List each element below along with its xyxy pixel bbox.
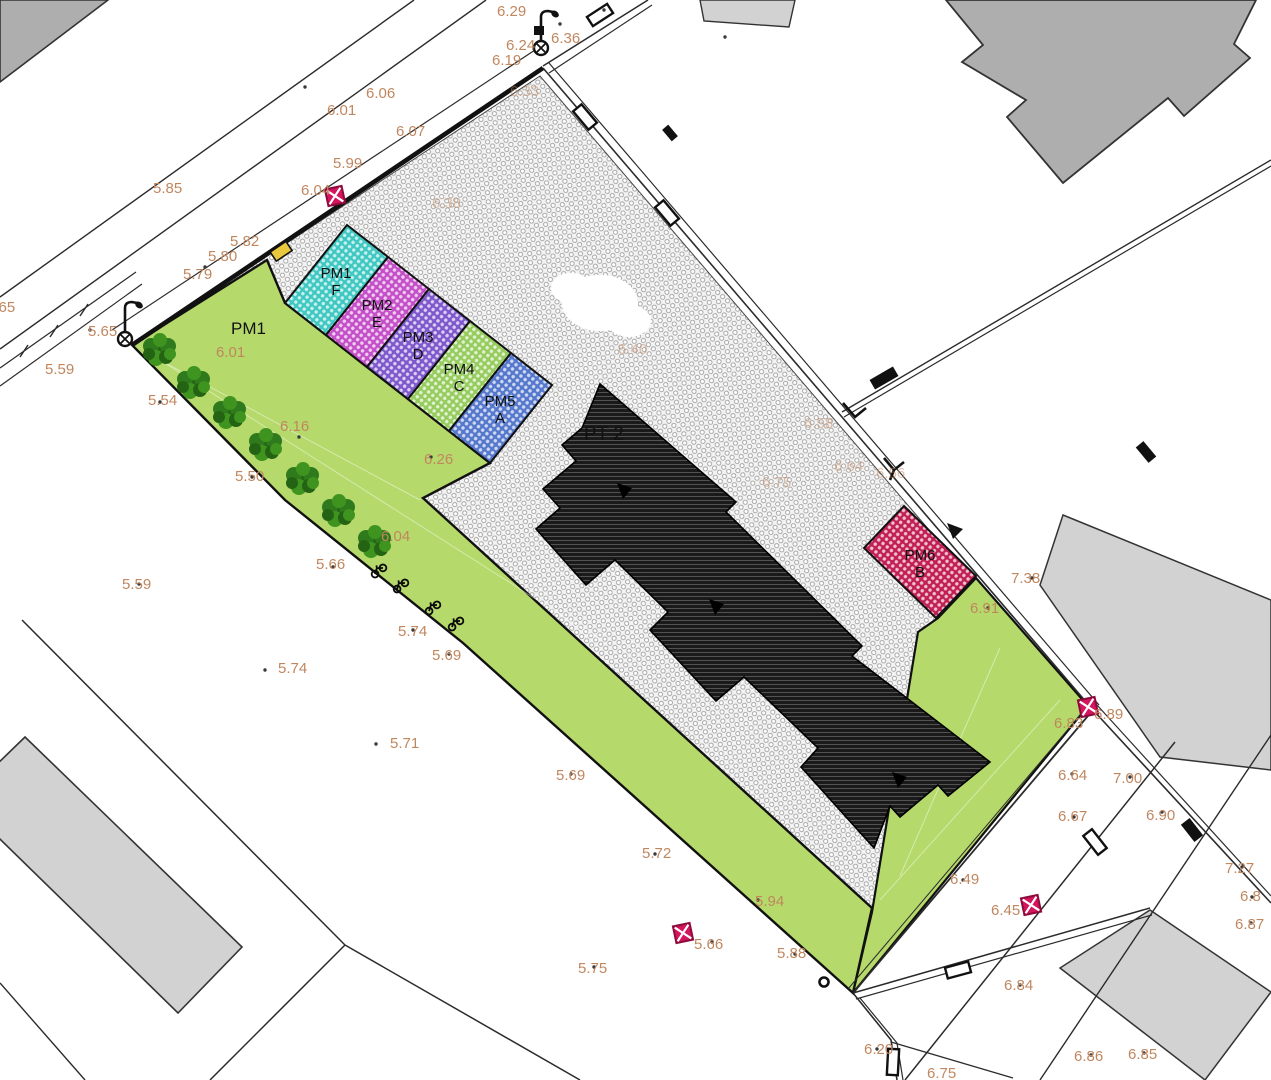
- boundary-marker-icon: [1021, 895, 1041, 915]
- elevation-label: 5.71: [390, 735, 419, 752]
- curb-line-left-1: [0, 272, 136, 368]
- shape: [296, 462, 310, 476]
- survey-dot: [602, 8, 605, 11]
- elevation-label: 6.04: [301, 182, 330, 199]
- elevation-label: 5.66: [694, 936, 723, 953]
- elevation-label: 7.27: [1225, 860, 1254, 877]
- elevation-label: 5.72: [642, 845, 671, 862]
- elevation-label: 6.04: [381, 528, 410, 545]
- elevation-label: 5.50: [235, 468, 264, 485]
- elevation-label: 6.8: [1240, 888, 1261, 905]
- shape: [368, 525, 382, 539]
- parking-space-label: B: [915, 564, 925, 581]
- fence-line-right: [842, 160, 1271, 412]
- elevation-label: 6.83: [1054, 715, 1083, 732]
- utility-point-icon: [820, 978, 829, 987]
- elevation-label: 5.74: [398, 623, 427, 640]
- parking-space-label: A: [495, 410, 505, 427]
- curb-tick: [50, 325, 58, 337]
- curb-tick: [20, 345, 28, 357]
- parcel-line-bottom-left: [210, 945, 345, 1080]
- elevation-label-faint: 6.75: [762, 474, 791, 491]
- parcel-line-bottom-left: [0, 983, 85, 1080]
- elevation-label: 5.65: [0, 299, 15, 316]
- building-label: PT 2: [584, 424, 624, 445]
- parking-space-label: PM1: [321, 265, 352, 282]
- fence-post-icon: [662, 125, 678, 142]
- survey-dot: [263, 668, 266, 671]
- elevation-label: 5.69: [432, 647, 461, 664]
- shape: [307, 477, 319, 489]
- elevation-label-faint: 6.38: [432, 195, 461, 212]
- survey-dot: [558, 22, 561, 25]
- elevation-label: 6.84: [1004, 977, 1033, 994]
- elevation-label: 5.74: [278, 660, 307, 677]
- neighbor-building-bottom-left: [0, 737, 242, 1013]
- elevation-label: 6.01: [327, 102, 356, 119]
- elevation-label: 6.07: [396, 123, 425, 140]
- shape: [259, 428, 273, 442]
- elevation-label: 5.88: [777, 945, 806, 962]
- parking-space-label: F: [331, 282, 340, 299]
- elevation-label: 6.90: [1146, 807, 1175, 824]
- shape: [223, 396, 237, 410]
- elevation-label: 5.69: [556, 767, 585, 784]
- shape: [143, 348, 155, 360]
- shape: [343, 509, 355, 521]
- shape: [286, 477, 298, 489]
- elevation-label: 6.86: [1074, 1048, 1103, 1065]
- parking-space-label: PM5: [485, 393, 516, 410]
- elevation-label-faint: 6.58: [804, 415, 833, 432]
- survey-dot: [374, 742, 377, 745]
- elevation-label: 6.36: [551, 30, 580, 47]
- boundary-marker-icon: [673, 923, 693, 943]
- shape: [270, 443, 282, 455]
- shape: [213, 411, 225, 423]
- parking-space-label: PM6: [905, 547, 936, 564]
- elevation-label: 6.75: [927, 1065, 956, 1080]
- survey-dot: [303, 85, 306, 88]
- elevation-label: 6.49: [950, 871, 979, 888]
- elevation-label: 6.29: [497, 3, 526, 20]
- neighbor-building-top-left: [0, 0, 108, 82]
- shape: [534, 26, 544, 35]
- parking-space-label: D: [413, 346, 424, 363]
- shape: [187, 366, 201, 380]
- site-plan: PM1FPM2EPM3DPM4CPM5APM6BPT 2PM16.296.246…: [0, 0, 1271, 1080]
- fence-post-icon: [870, 366, 899, 389]
- shape: [358, 540, 370, 552]
- parking-space-label: PM2: [362, 297, 393, 314]
- elevation-label: 5.54: [148, 392, 177, 409]
- pavement-erase-blob: [551, 273, 591, 303]
- elevation-label: 5.85: [153, 180, 182, 197]
- pavement-erase-blob: [607, 305, 651, 337]
- elevation-label: 5.79: [183, 266, 212, 283]
- elevation-label: 7.38: [1011, 570, 1040, 587]
- elevation-label: 6.89: [1094, 706, 1123, 723]
- elevation-label: 5.94: [755, 893, 784, 910]
- parking-space-label: E: [372, 314, 382, 331]
- survey-dot: [723, 35, 726, 38]
- elevation-label: 5.59: [122, 576, 151, 593]
- elevation-label: 6.19: [492, 52, 521, 69]
- shape: [249, 443, 261, 455]
- elevation-label: 5.59: [45, 361, 74, 378]
- elevation-label: 6.20: [864, 1041, 893, 1058]
- green-zone-label: PM1: [231, 319, 266, 338]
- elevation-label-faint: 6.56: [876, 465, 905, 482]
- shape: [234, 411, 246, 423]
- parking-space-label: PM4: [444, 361, 475, 378]
- fence-post-icon: [587, 4, 613, 26]
- elevation-label: 6.87: [1235, 916, 1264, 933]
- elevation-label: 6.85: [1128, 1046, 1157, 1063]
- parking-space-label: PM3: [403, 329, 434, 346]
- fence-post-icon: [945, 962, 971, 979]
- elevation-label: 6.06: [366, 85, 395, 102]
- elevation-label-faint: 6.64: [834, 458, 863, 475]
- elevation-label: 6.64: [1058, 767, 1087, 784]
- elevation-label: 7.00: [1113, 770, 1142, 787]
- elevation-label: 5.80: [208, 248, 237, 265]
- fence-line-right: [844, 166, 1271, 417]
- parcel-line-bottom-left: [345, 945, 580, 1080]
- shape: [322, 509, 334, 521]
- elevation-label-faint: 6.33: [510, 83, 539, 100]
- elevation-label: 5.65: [88, 323, 117, 340]
- shape: [198, 381, 210, 393]
- elevation-label: 6.16: [280, 418, 309, 435]
- shape: [177, 381, 189, 393]
- neighbor-building-top-right: [946, 0, 1256, 183]
- elevation-label: 6.67: [1058, 808, 1087, 825]
- elevation-label: 5.66: [316, 556, 345, 573]
- neighbor-building-top-middle: [700, 0, 795, 27]
- elevation-label: 6.01: [216, 344, 245, 361]
- site-plan-drawing: PM1FPM2EPM3DPM4CPM5APM6BPT 2PM16.296.246…: [0, 0, 1271, 1080]
- fence-post-icon: [1136, 441, 1157, 463]
- parking-space-label: C: [454, 378, 465, 395]
- shape: [164, 348, 176, 360]
- survey-dot: [297, 435, 300, 438]
- elevation-label: 6.26: [424, 451, 453, 468]
- elevation-label: 6.91: [970, 600, 999, 617]
- elevation-label: 5.75: [578, 960, 607, 977]
- elevation-label: 5.99: [333, 155, 362, 172]
- fence-post-icon: [1181, 818, 1203, 842]
- shape: [153, 333, 167, 347]
- elevation-label-faint: 6.40: [618, 341, 647, 358]
- elevation-label: 6.45: [991, 902, 1020, 919]
- shape: [332, 494, 346, 508]
